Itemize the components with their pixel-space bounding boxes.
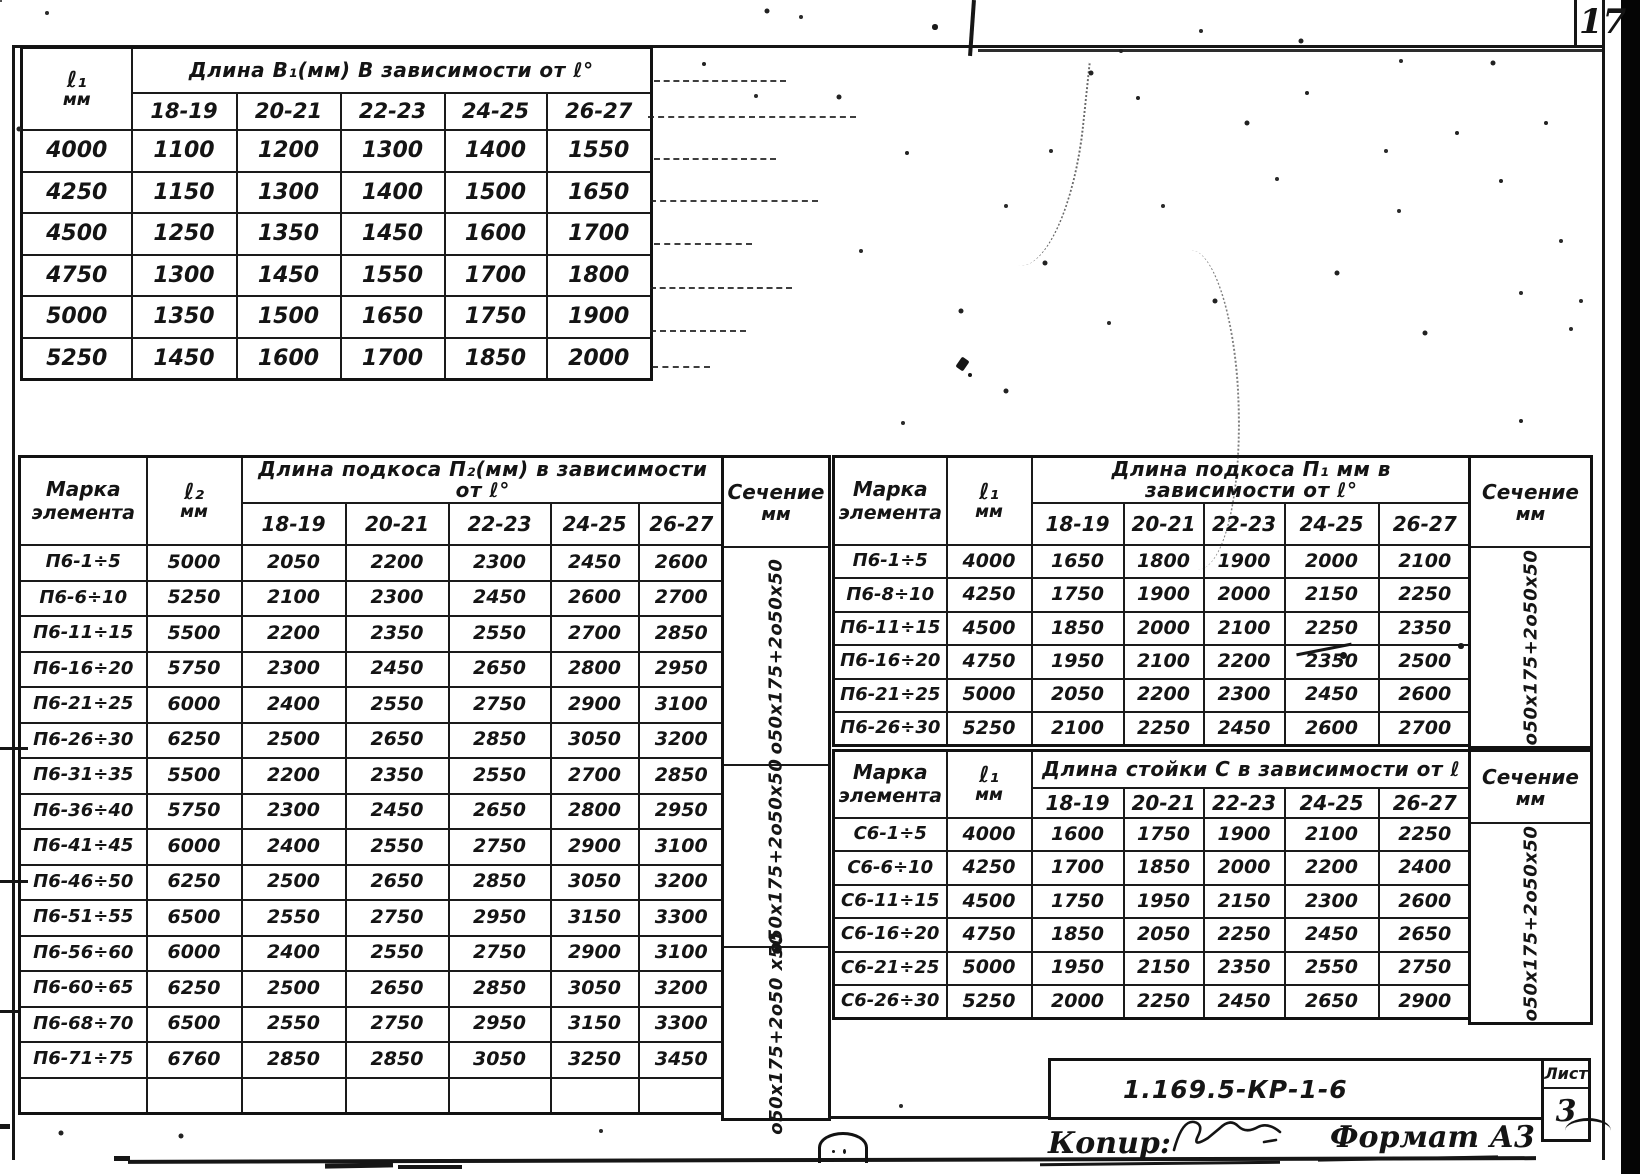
table-cell: 3250 [551,1042,639,1078]
marka-sublabel: элемента [837,787,944,807]
table-cell: 1750 [445,296,547,338]
table-cell: 2600 [639,545,725,581]
table-cell: 3150 [551,1007,639,1043]
table-cell: 6760 [147,1042,242,1078]
col-header-20-21: 20-21 [1124,788,1204,818]
table-cell: 2950 [449,1007,551,1043]
table-cell: 4500 [947,612,1032,645]
table-row: С6-11÷15450017501950215023002600 [834,885,1472,918]
sechenie-label: Сечение [1482,765,1579,789]
table-cell: П6-21÷25 [834,679,947,712]
table-cell: 1750 [1032,885,1124,918]
table-cell: 2400 [242,936,346,972]
copy-underline [1040,1161,1280,1167]
table-cell: 1850 [1032,918,1124,951]
table-cell: П6-1÷5 [834,545,947,578]
table-cell: 6000 [147,829,242,865]
col-header-24-25: 24-25 [1285,503,1379,545]
table-cell: 2100 [1032,712,1124,746]
table-cell: 2150 [1285,578,1379,611]
table-cell: 1850 [1032,612,1124,645]
table-cell: 2950 [639,652,725,688]
table-cell: 5000 [947,952,1032,985]
table-cell: 2850 [639,616,725,652]
table-cell: 2700 [551,758,639,794]
b1-table-body: 4000110012001300140015504250115013001400… [22,130,652,380]
col-header-20-21: 20-21 [237,93,341,130]
table-cell: 2700 [639,581,725,617]
table-cell: 2850 [639,758,725,794]
table-cell: 2250 [1285,612,1379,645]
table-cell: 2400 [1379,851,1472,884]
table-cell: 5750 [147,794,242,830]
table-cell: 2100 [242,581,346,617]
col-header-26-27: 26-27 [639,503,725,545]
table-row: П6-60÷65625025002650285030503200 [20,971,725,1007]
b1-table-wrapper: ℓ₁ мм Длина В₁(мм) В зависимости от ℓ° 1… [20,46,653,381]
stoika-c-wrapper: Марка элемента ℓ₁ мм Длина стойки С в за… [832,749,1595,1025]
table-cell: 2550 [1285,952,1379,985]
table-row: С6-21÷25500019502150235025502750 [834,952,1472,985]
table-cell: 2100 [1285,818,1379,851]
table-cell: П6-11÷15 [20,616,147,652]
table-cell: С6-26÷30 [834,985,947,1019]
table-cell: 2150 [1204,885,1285,918]
l1-units: мм [25,92,129,110]
table-cell: 2350 [1204,952,1285,985]
table-cell: 1700 [341,338,445,380]
table-cell: 2850 [449,723,551,759]
podkos-p1-body: П6-1÷5400016501800190020002100П6-8÷10425… [834,545,1472,746]
table-cell: 1350 [237,213,341,255]
table-cell: 2750 [346,1007,449,1043]
table-cell: 4750 [947,918,1032,951]
table-cell: 2650 [449,652,551,688]
table-cell: 2350 [1379,612,1472,645]
table-cell: 4500 [947,885,1032,918]
table-cell: 2450 [449,581,551,617]
table-cell: 1200 [237,130,341,172]
table-cell: П6-71÷75 [20,1042,147,1078]
table-cell: П6-11÷15 [834,612,947,645]
table-cell: 2300 [242,652,346,688]
b1-table-head: ℓ₁ мм Длина В₁(мм) В зависимости от ℓ° 1… [22,48,652,131]
table-cell: 2100 [1204,612,1285,645]
table-cell: С6-1÷5 [834,818,947,851]
table-row: П6-26÷30625025002650285030503200 [20,723,725,759]
table-cell: 2200 [242,616,346,652]
table-cell: 2050 [242,545,346,581]
ink-dot [832,1150,835,1153]
sechenie-header: Сечение мм [1471,458,1590,548]
col-header-24-25: 24-25 [551,503,639,545]
table-cell: П6-51÷55 [20,900,147,936]
col-header-18-19: 18-19 [1032,788,1124,818]
table-cell: 5750 [147,652,242,688]
table-cell: 5000 [22,296,132,338]
sechenie-label: Сечение [728,480,825,504]
table-cell: 2300 [346,581,449,617]
table-cell: 2000 [547,338,652,380]
table-cell: 2300 [1204,679,1285,712]
table-cell: 2550 [346,936,449,972]
col-header-22-23: 22-23 [449,503,551,545]
l2-units: мм [150,504,239,522]
table-row: П6-56÷60600024002550275029003100 [20,936,725,972]
table-cell: 3150 [551,900,639,936]
copy-label: Копир: [1048,1126,1171,1161]
table-cell: 2650 [346,971,449,1007]
table-cell: 2300 [1285,885,1379,918]
table-cell: 4250 [947,578,1032,611]
podkos-p1-sechenie-column: Сечение мм о50х175+2о50х50 [1468,455,1593,749]
l1-corner-header: ℓ₁ мм [947,751,1032,819]
table-cell: 4000 [947,818,1032,851]
marka-corner-header: Марка элемента [834,457,947,546]
marka-label: Марка [837,762,944,783]
table-cell: 2650 [1285,985,1379,1019]
col-header-24-25: 24-25 [445,93,547,130]
sechenie-units: мм [1516,789,1545,810]
table-cell: 1650 [1032,545,1124,578]
drawing-sheet: 17 ℓ₁ мм Длина В₁(мм) В зависимости от ℓ… [0,0,1640,1174]
table-row: П6-11÷15450018502000210022502350 [834,612,1472,645]
table-row: П6-16÷20575023002450265028002950 [20,652,725,688]
table-cell [551,1078,639,1114]
podkos-p2-sechenie-column: Сечение мм о50х175+2о50х50 о50х175+2о50х… [721,455,831,1121]
l2-corner-header: ℓ₂ мм [147,457,242,546]
table-cell: 3200 [639,865,725,901]
marka-label: Марка [23,479,144,500]
ink-dot [968,373,972,377]
table-cell: 2550 [449,616,551,652]
table-cell: 1900 [1204,818,1285,851]
table-cell: 2650 [449,794,551,830]
col-header-20-21: 20-21 [346,503,449,545]
sechenie-value: о50х175+2о50х50 [766,558,787,754]
table-cell: 4750 [22,255,132,297]
col-header-26-27: 26-27 [1379,503,1472,545]
l1-symbol: ℓ₁ [950,481,1029,504]
table-cell: П6-1÷5 [20,545,147,581]
sechenie-group: о50х175+2о50х50 [1471,824,1590,1022]
table-cell: 2250 [1124,985,1204,1019]
table-row: 425011501300140015001650 [22,172,652,214]
marka-label: Марка [837,479,944,500]
table-cell: 5250 [147,581,242,617]
table-cell [346,1078,449,1114]
table-cell: 1700 [445,255,547,297]
marka-corner-header: Марка элемента [834,751,947,819]
table-row: 450012501350145016001700 [22,213,652,255]
col-header-22-23: 22-23 [1204,788,1285,818]
empty-row [20,1078,725,1114]
table-cell: 2150 [1124,952,1204,985]
scan-edge-band [1621,0,1640,1174]
table-row: П6-41÷45600024002550275029003100 [20,829,725,865]
table-cell: 3050 [551,723,639,759]
scan-dome-mark [818,1132,868,1163]
sheet-label: Лист [1544,1061,1588,1089]
table-cell: 5000 [147,545,242,581]
table-cell: 2850 [449,865,551,901]
col-header-26-27: 26-27 [547,93,652,130]
table-cell [639,1078,725,1114]
podkos-p2-title: Длина подкоса П₂(мм) в зависимости от ℓ° [242,457,725,504]
table-cell: 3200 [639,971,725,1007]
table-cell: 2450 [1285,679,1379,712]
table-cell: 1550 [547,130,652,172]
table-cell: 2000 [1204,851,1285,884]
table-cell: П6-68÷70 [20,1007,147,1043]
table-cell: 5250 [947,712,1032,746]
sechenie-value: о50х175+2о50х50 [1520,825,1541,1021]
table-cell: П6-31÷35 [20,758,147,794]
podkos-p2-wrapper: Марка элемента ℓ₂ мм Длина подкоса П₂(мм… [18,455,833,1121]
table-cell: П6-26÷30 [834,712,947,746]
frame-right-line [1602,0,1605,1160]
sechenie-value: о50х175+2о50 х50 [766,932,787,1135]
table-cell: 2200 [1124,679,1204,712]
table-cell: 6250 [147,971,242,1007]
table-row: П6-6÷10525021002300245026002700 [20,581,725,617]
table-cell: 3100 [639,936,725,972]
table-cell: 4000 [22,130,132,172]
table-row: П6-46÷50625025002650285030503200 [20,865,725,901]
table-cell: 6000 [147,687,242,723]
connector-line [828,1116,1050,1119]
table-cell: 1950 [1032,645,1124,678]
table-cell: 2450 [346,652,449,688]
table-cell: 1600 [1032,818,1124,851]
table-cell: 2850 [242,1042,346,1078]
stoika-c-body: С6-1÷5400016001750190021002250С6-6÷10425… [834,818,1472,1019]
table-cell: 4750 [947,645,1032,678]
table-cell: 5250 [22,338,132,380]
table-cell: 2200 [1204,645,1285,678]
table-cell: 2050 [1124,918,1204,951]
table-row: 475013001450155017001800 [22,255,652,297]
signature [1168,1112,1288,1158]
table-cell: 2350 [346,758,449,794]
table-cell: 2900 [551,829,639,865]
table-cell: 1800 [547,255,652,297]
table-cell: 2800 [551,794,639,830]
table-cell: 2300 [242,794,346,830]
table-cell: 5000 [947,679,1032,712]
table-cell: 3100 [639,829,725,865]
table-cell: 1550 [341,255,445,297]
table-row: С6-6÷10425017001850200022002400 [834,851,1472,884]
marka-corner-header: Марка элемента [20,457,147,546]
b1-table-title: Длина В₁(мм) В зависимости от ℓ° [132,48,652,94]
table-cell: 1450 [237,255,341,297]
l1-corner-header: ℓ₁ мм [22,48,132,131]
fold-tick [0,1010,20,1013]
table-cell: 1300 [237,172,341,214]
ink-dot [843,1149,846,1154]
table-row: П6-8÷10425017501900200021502250 [834,578,1472,611]
page-number: 17 [1579,2,1605,42]
table-cell: С6-6÷10 [834,851,947,884]
marka-sublabel: элемента [23,504,144,524]
l1-units: мм [950,504,1029,522]
table-cell: 2400 [242,687,346,723]
col-header-24-25: 24-25 [1285,788,1379,818]
table-cell: 5500 [147,616,242,652]
sechenie-group-2: о50х175+2о50х50 [724,766,828,948]
ink-blob [955,357,969,372]
table-row: С6-1÷5400016001750190021002250 [834,818,1472,851]
table-cell: 2600 [551,581,639,617]
table-cell: 2500 [242,865,346,901]
table-cell: 2450 [1204,985,1285,1019]
table-cell: 2450 [346,794,449,830]
col-header-22-23: 22-23 [341,93,445,130]
table-cell: П6-56÷60 [20,936,147,972]
sechenie-units: мм [1516,504,1545,525]
table-cell: 2850 [346,1042,449,1078]
table-cell: 1400 [445,130,547,172]
podkos-p2-table: Марка элемента ℓ₂ мм Длина подкоса П₂(мм… [18,455,726,1115]
table-cell: 1350 [132,296,237,338]
table-cell: 1850 [445,338,547,380]
table-cell: 1850 [1124,851,1204,884]
table-row: П6-1÷5500020502200230024502600 [20,545,725,581]
table-cell: 3100 [639,687,725,723]
table-cell: 2450 [1204,712,1285,746]
table-cell: 2650 [346,723,449,759]
table-cell: 2400 [242,829,346,865]
table-cell: 1500 [445,172,547,214]
table-cell: П6-16÷20 [834,645,947,678]
table-cell: 2250 [1204,918,1285,951]
col-header-26-27: 26-27 [1379,788,1472,818]
table-cell: С6-21÷25 [834,952,947,985]
table-row: 400011001200130014001550 [22,130,652,172]
table-cell [147,1078,242,1114]
page-number-box-line [1574,0,1577,48]
scan-arc-mark [1565,1118,1611,1143]
table-cell: 2100 [1379,545,1472,578]
table-cell: 2900 [1379,985,1472,1019]
table-row: П6-71÷75676028502850305032503450 [20,1042,725,1078]
scan-noise-speckles [0,0,2,2]
table-cell: 2900 [551,936,639,972]
podkos-p2-body: П6-1÷5500020502200230024502600П6-6÷10525… [20,545,725,1114]
table-cell: 2450 [551,545,639,581]
sechenie-value: о50х175+2о50х50 [1520,549,1541,745]
table-cell: 4500 [22,213,132,255]
table-row: 500013501500165017501900 [22,296,652,338]
table-cell: 1900 [1124,578,1204,611]
table-cell: 2650 [1379,918,1472,951]
table-cell: 6250 [147,865,242,901]
table-cell: 2750 [449,687,551,723]
table-cell: 1650 [341,296,445,338]
table-cell: 2250 [1124,712,1204,746]
table-cell: 3050 [551,971,639,1007]
table-row: П6-21÷25500020502200230024502600 [834,679,1472,712]
marka-sublabel: элемента [837,504,944,524]
l1-symbol: ℓ₁ [25,69,129,92]
stoika-c-sechenie-column: Сечение мм о50х175+2о50х50 [1468,749,1593,1025]
table-cell: 1450 [341,213,445,255]
table-cell: П6-36÷40 [20,794,147,830]
table-cell: П6-8÷10 [834,578,947,611]
table-row: П6-36÷40575023002450265028002950 [20,794,725,830]
col-header-18-19: 18-19 [242,503,346,545]
sechenie-header: Сечение мм [724,458,828,548]
table-cell [449,1078,551,1114]
table-cell: 2050 [1032,679,1124,712]
podkos-p2-head: Марка элемента ℓ₂ мм Длина подкоса П₂(мм… [20,457,725,546]
table-cell: 2550 [449,758,551,794]
table-cell: 1650 [547,172,652,214]
table-cell: 2250 [1379,818,1472,851]
stoika-c-table: Марка элемента ℓ₁ мм Длина стойки С в за… [832,749,1473,1020]
table-cell: 6000 [147,936,242,972]
table-cell: 2600 [1285,712,1379,746]
table-cell: 1700 [547,213,652,255]
table-cell: 2100 [1124,645,1204,678]
table-cell: П6-26÷30 [20,723,147,759]
table-cell: 5500 [147,758,242,794]
frame-left-line [12,45,15,1160]
table-cell: 1150 [132,172,237,214]
table-cell: 1700 [1032,851,1124,884]
table-cell: 4000 [947,545,1032,578]
table-cell: 1600 [237,338,341,380]
table-cell: 2600 [1379,885,1472,918]
table-row: П6-11÷15550022002350255027002850 [20,616,725,652]
table-cell: 2550 [346,829,449,865]
table-cell: 2550 [346,687,449,723]
sechenie-group-1: о50х175+2о50х50 [724,548,828,766]
table-cell [20,1078,147,1114]
podkos-p1-title: Длина подкоса П₁ мм в зависимости от ℓ° [1032,457,1472,504]
title-block: 1.169.5-КР-1-6 [1048,1058,1544,1120]
table-cell: 1950 [1032,952,1124,985]
table-cell: 1600 [445,213,547,255]
l2-symbol: ℓ₂ [150,481,239,504]
table-cell: 2000 [1032,985,1124,1019]
table-row: П6-31÷35550022002350255027002850 [20,758,725,794]
l1-corner-header: ℓ₁ мм [947,457,1032,546]
table-cell: П6-21÷25 [20,687,147,723]
table-cell: 2750 [449,829,551,865]
table-cell: 2200 [346,545,449,581]
ink-blob [1340,652,1347,659]
table-cell: 2650 [346,865,449,901]
table-cell: 6250 [147,723,242,759]
table-cell: 2000 [1124,612,1204,645]
table-row: П6-51÷55650025502750295031503300 [20,900,725,936]
scan-curve-artifact [997,55,1091,271]
table-cell: 3200 [639,723,725,759]
table-cell: 2550 [242,1007,346,1043]
sechenie-header: Сечение мм [1471,752,1590,824]
table-cell: 4250 [22,172,132,214]
stoika-c-title: Длина стойки С в зависимости от ℓ [1032,751,1472,789]
table-cell: 1750 [1124,818,1204,851]
col-header-18-19: 18-19 [1032,503,1124,545]
table-cell: 1950 [1124,885,1204,918]
table-cell: 6500 [147,900,242,936]
table-cell: П6-41÷45 [20,829,147,865]
table-cell: 2700 [551,616,639,652]
table-cell: 6500 [147,1007,242,1043]
